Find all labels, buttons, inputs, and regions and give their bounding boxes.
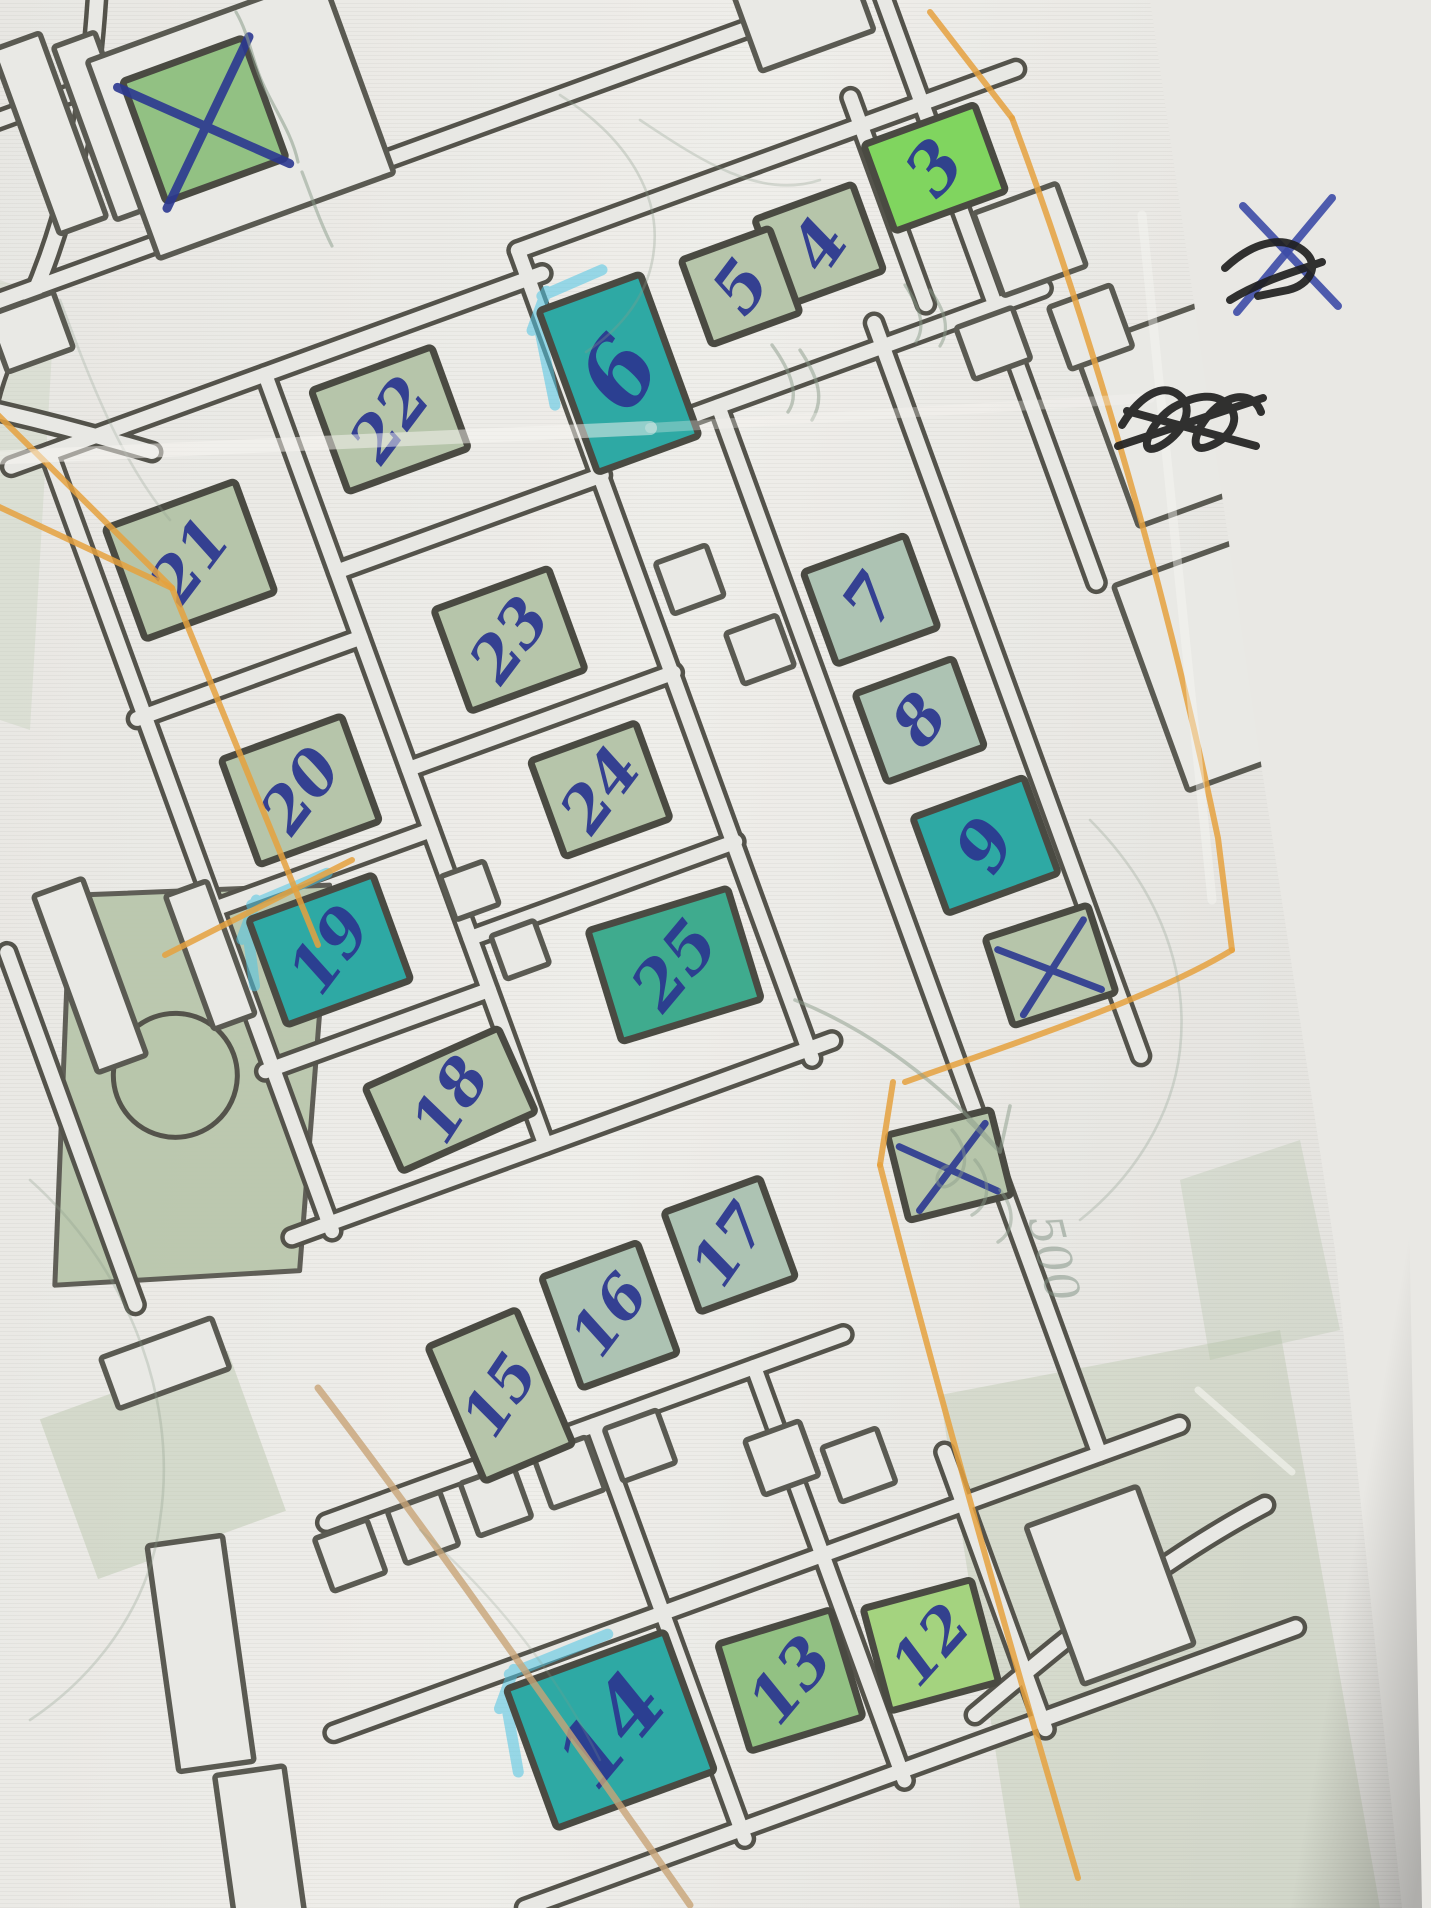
building-24: 24	[528, 720, 671, 861]
crossed-out-building-shape	[985, 905, 1116, 1026]
building-22: 22	[311, 347, 468, 493]
building-7: 7	[803, 535, 938, 664]
building-17: 17	[661, 1176, 799, 1313]
building-16: 16	[539, 1241, 681, 1389]
building-25: 25	[588, 888, 762, 1042]
outline-building	[147, 1535, 254, 1771]
outline-building	[215, 1766, 307, 1908]
building-21: 21	[105, 481, 275, 639]
building-20: 20	[221, 716, 380, 865]
building-23: 23	[434, 568, 586, 712]
building-6: 6	[517, 256, 703, 478]
crossed-out-building	[985, 905, 1116, 1026]
pencil-note-500: 500	[1017, 1209, 1091, 1307]
building-8: 8	[855, 658, 985, 782]
outline-building	[731, 0, 875, 71]
annotated-street-map: 34567892221232024192518171615121314500	[0, 0, 1431, 1908]
building-12: 12	[863, 1580, 999, 1711]
outline-building	[822, 1428, 896, 1502]
outline-building	[725, 615, 794, 684]
outline-building	[655, 545, 724, 614]
crossed-out-building	[888, 1109, 1012, 1220]
photo-of-paper-map: { "photo": { "table_color": "#38291f", "…	[0, 0, 1431, 1908]
